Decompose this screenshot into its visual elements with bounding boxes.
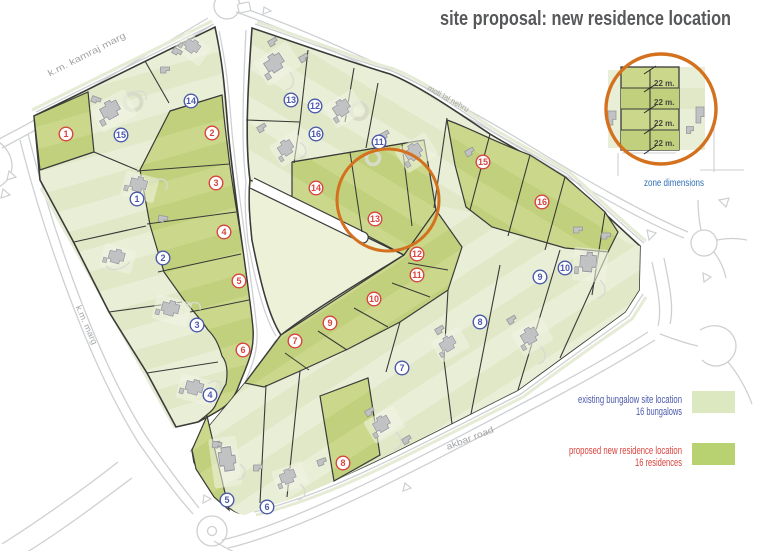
- svg-text:7: 7: [292, 336, 297, 346]
- svg-text:4: 4: [207, 390, 212, 400]
- svg-text:9: 9: [327, 318, 332, 328]
- svg-text:2: 2: [209, 128, 214, 138]
- svg-text:13: 13: [370, 214, 380, 224]
- svg-text:1: 1: [134, 194, 139, 204]
- svg-text:14: 14: [186, 96, 196, 106]
- svg-text:13: 13: [286, 95, 296, 105]
- svg-text:22 m.: 22 m.: [654, 98, 674, 107]
- svg-text:1: 1: [63, 129, 68, 139]
- svg-text:22 m.: 22 m.: [654, 79, 674, 88]
- svg-text:22 m.: 22 m.: [654, 119, 674, 128]
- svg-text:proposed new residence locatio: proposed new residence location: [569, 445, 682, 457]
- svg-text:14: 14: [311, 183, 321, 193]
- svg-text:5: 5: [236, 276, 241, 286]
- svg-text:11: 11: [374, 137, 384, 147]
- svg-text:5: 5: [224, 495, 229, 505]
- svg-text:16 residences: 16 residences: [635, 457, 682, 469]
- svg-text:16: 16: [311, 129, 321, 139]
- svg-text:site proposal: new residence: site proposal: new residence location: [440, 8, 731, 30]
- svg-text:12: 12: [412, 249, 422, 259]
- svg-text:existing bungalow site locatio: existing bungalow site location: [578, 394, 682, 406]
- svg-text:12: 12: [310, 101, 320, 111]
- svg-text:9: 9: [537, 272, 542, 282]
- svg-text:4: 4: [221, 227, 226, 237]
- svg-text:8: 8: [340, 458, 345, 468]
- svg-text:15: 15: [116, 130, 126, 140]
- svg-text:3: 3: [194, 320, 199, 330]
- svg-text:10: 10: [369, 294, 379, 304]
- svg-text:6: 6: [240, 345, 245, 355]
- svg-text:zone dimensions: zone dimensions: [644, 177, 704, 189]
- svg-text:15: 15: [478, 157, 488, 167]
- svg-text:8: 8: [477, 317, 482, 327]
- svg-text:3: 3: [213, 178, 218, 188]
- svg-text:2: 2: [160, 253, 165, 263]
- svg-text:7: 7: [399, 363, 404, 373]
- svg-text:16: 16: [537, 197, 547, 207]
- svg-text:10: 10: [560, 263, 570, 273]
- svg-text:22 m.: 22 m.: [654, 139, 674, 148]
- svg-text:6: 6: [264, 502, 269, 512]
- svg-text:16 bungalows: 16 bungalows: [636, 406, 682, 418]
- svg-text:11: 11: [412, 270, 422, 280]
